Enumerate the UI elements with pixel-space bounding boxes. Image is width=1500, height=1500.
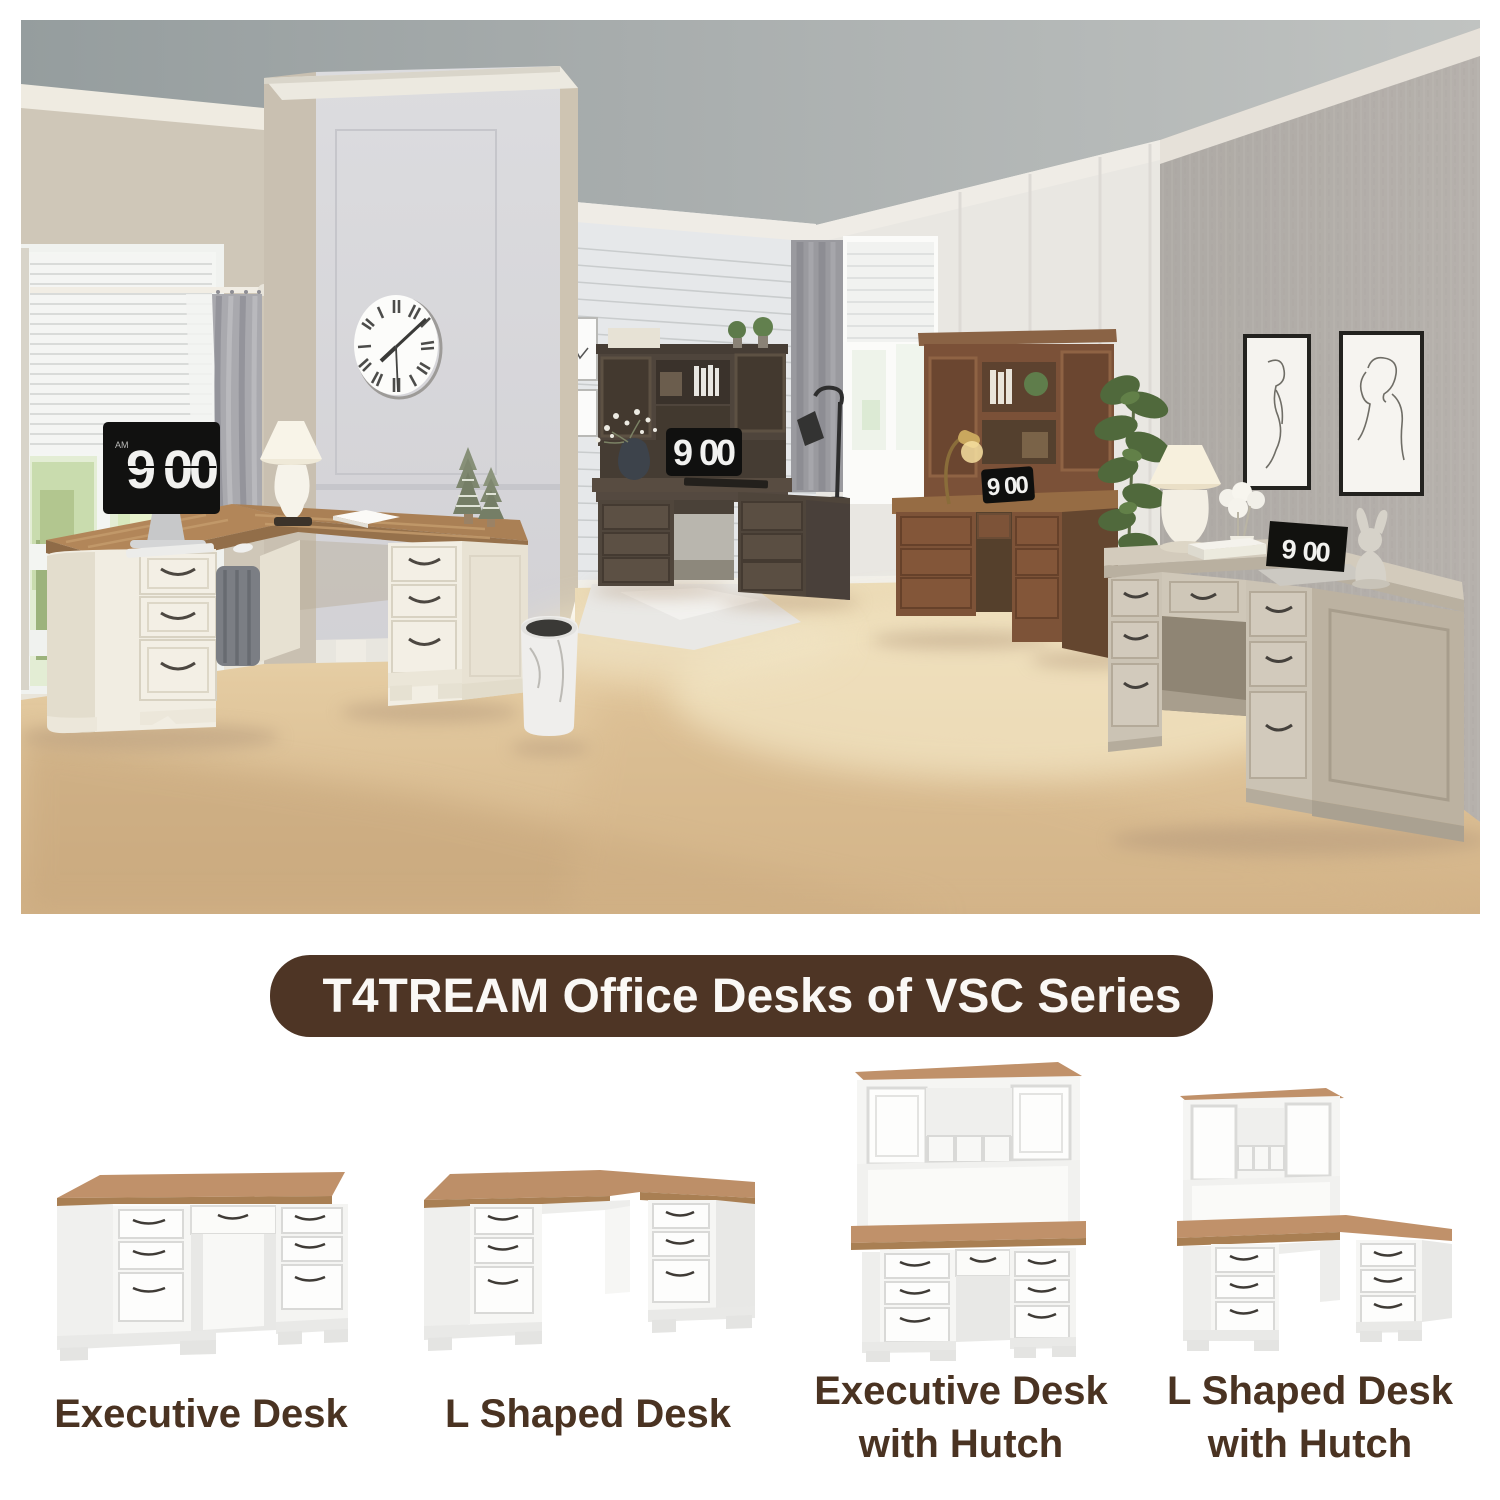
svg-text:00: 00	[1302, 536, 1331, 568]
svg-text:with Hutch: with Hutch	[1207, 1422, 1412, 1466]
svg-text:AM: AM	[115, 440, 129, 450]
svg-text:9: 9	[1281, 534, 1298, 565]
svg-text:00: 00	[1003, 472, 1029, 501]
svg-text:Executive Desk: Executive Desk	[54, 1392, 348, 1436]
svg-text:00: 00	[163, 440, 217, 500]
svg-text:T4TREAM Office Desks of VSC Se: T4TREAM Office Desks of VSC Series	[323, 970, 1182, 1023]
svg-text:9: 9	[673, 432, 693, 473]
svg-text:with Hutch: with Hutch	[858, 1422, 1063, 1466]
svg-text:9: 9	[986, 473, 1001, 501]
svg-text:00: 00	[699, 432, 735, 473]
svg-text:L Shaped Desk: L Shaped Desk	[445, 1392, 732, 1436]
svg-text:L Shaped Desk: L Shaped Desk	[1167, 1369, 1454, 1413]
svg-text:9: 9	[126, 440, 156, 500]
svg-text:Executive Desk: Executive Desk	[814, 1369, 1108, 1413]
